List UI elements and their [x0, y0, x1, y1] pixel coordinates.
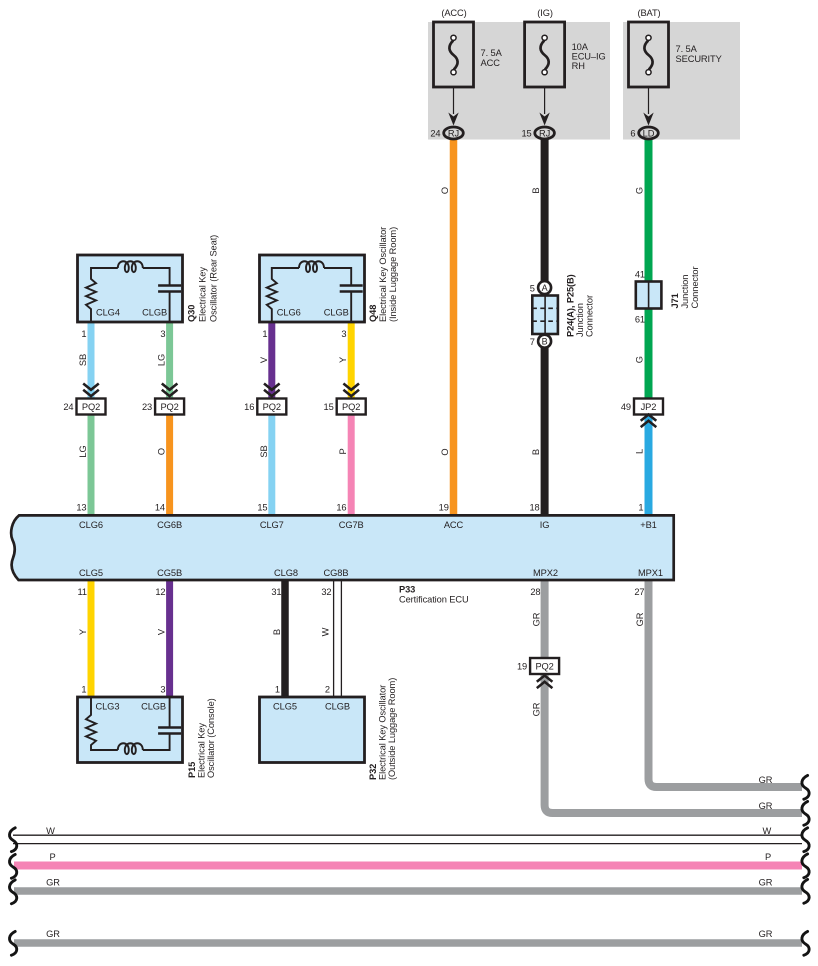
svg-text:CLG8: CLG8	[274, 568, 298, 578]
svg-text:Connector: Connector	[690, 267, 700, 309]
svg-text:SECURITY: SECURITY	[676, 54, 722, 64]
svg-text:J71: J71	[670, 293, 680, 308]
svg-text:B: B	[542, 337, 548, 347]
svg-text:G: G	[635, 187, 645, 194]
svg-text:PQ2: PQ2	[160, 402, 178, 412]
svg-text:Junction: Junction	[575, 303, 585, 337]
svg-text:GR: GR	[759, 801, 773, 811]
svg-text:61: 61	[635, 315, 645, 325]
svg-text:CLG3: CLG3	[96, 702, 120, 712]
svg-text:GR: GR	[635, 612, 645, 626]
svg-text:3: 3	[341, 329, 346, 339]
svg-text:GR: GR	[531, 612, 541, 626]
svg-text:RJ: RJ	[539, 128, 550, 138]
svg-text:LG: LG	[157, 354, 167, 366]
svg-text:(Inside Luggage Room): (Inside Luggage Room)	[388, 227, 398, 322]
svg-text:3: 3	[160, 685, 165, 695]
svg-text:B: B	[272, 629, 282, 635]
svg-text:O: O	[440, 187, 450, 194]
svg-text:16: 16	[336, 503, 346, 513]
svg-text:GR: GR	[759, 878, 773, 888]
svg-text:49: 49	[621, 402, 631, 412]
svg-text:P: P	[49, 852, 55, 862]
svg-text:Y: Y	[78, 629, 88, 635]
svg-text:27: 27	[634, 587, 644, 597]
svg-text:A: A	[542, 283, 548, 293]
svg-text:Junction: Junction	[680, 275, 690, 309]
svg-text:15: 15	[257, 503, 267, 513]
svg-text:CG7B: CG7B	[339, 520, 364, 530]
svg-text:18: 18	[529, 503, 539, 513]
svg-text:PQ2: PQ2	[342, 402, 360, 412]
svg-text:13: 13	[76, 503, 86, 513]
svg-text:GR: GR	[759, 929, 773, 939]
svg-text:GR: GR	[759, 775, 773, 785]
svg-text:LG: LG	[78, 445, 88, 457]
svg-text:14: 14	[155, 503, 165, 513]
svg-text:W: W	[762, 826, 771, 836]
svg-text:P: P	[338, 448, 348, 454]
svg-text:LD: LD	[643, 128, 655, 138]
svg-text:ECU–IG: ECU–IG	[572, 52, 606, 62]
svg-text:GR: GR	[531, 702, 541, 716]
svg-text:O: O	[157, 448, 167, 455]
svg-text:RH: RH	[572, 61, 585, 71]
svg-text:1: 1	[262, 329, 267, 339]
svg-text:Q30: Q30	[187, 305, 197, 322]
svg-text:19: 19	[517, 662, 527, 672]
svg-text:11: 11	[78, 587, 87, 597]
svg-text:W: W	[321, 627, 331, 636]
svg-text:23: 23	[142, 402, 152, 412]
svg-text:7. 5A: 7. 5A	[676, 44, 698, 54]
svg-text:B: B	[531, 187, 541, 193]
svg-text:JP2: JP2	[641, 402, 657, 412]
svg-text:GR: GR	[46, 929, 60, 939]
svg-text:31: 31	[271, 587, 281, 597]
svg-text:Electrical Key Oscillator: Electrical Key Oscillator	[378, 685, 388, 780]
svg-text:PQ2: PQ2	[82, 402, 100, 412]
svg-text:Oscillator (Console): Oscillator (Console)	[206, 698, 216, 778]
svg-text:1: 1	[275, 685, 280, 695]
svg-text:Y: Y	[338, 357, 348, 363]
svg-text:CLG5: CLG5	[273, 702, 297, 712]
svg-text:10A: 10A	[572, 42, 589, 52]
svg-text:3: 3	[160, 329, 165, 339]
svg-text:Electrical Key: Electrical Key	[197, 723, 207, 778]
svg-text:6: 6	[630, 129, 635, 139]
svg-text:CLGB: CLGB	[324, 308, 349, 318]
svg-text:Electrical Key: Electrical Key	[198, 267, 208, 322]
svg-text:(BAT): (BAT)	[637, 8, 660, 18]
svg-text:12: 12	[155, 587, 165, 597]
svg-text:RJ: RJ	[448, 128, 459, 138]
svg-text:CLGB: CLGB	[325, 702, 350, 712]
svg-text:24: 24	[63, 402, 73, 412]
svg-text:24: 24	[430, 129, 440, 139]
svg-text:P33: P33	[399, 584, 415, 594]
svg-text:ACC: ACC	[481, 58, 501, 68]
svg-text:1: 1	[81, 329, 86, 339]
svg-text:P32: P32	[368, 764, 378, 780]
svg-text:19: 19	[439, 503, 449, 513]
svg-text:Q48: Q48	[368, 305, 378, 322]
svg-text:CG5B: CG5B	[157, 568, 182, 578]
svg-text:P: P	[765, 852, 771, 862]
svg-text:MPX2: MPX2	[533, 568, 558, 578]
svg-text:Electrical Key Oscillator: Electrical Key Oscillator	[378, 227, 388, 322]
svg-text:(IG): (IG)	[537, 8, 553, 18]
svg-text:W: W	[46, 826, 55, 836]
svg-text:41: 41	[635, 270, 645, 280]
svg-text:V: V	[259, 356, 269, 363]
svg-text:GR: GR	[46, 878, 60, 888]
svg-text:B: B	[531, 449, 541, 455]
svg-text:CG8B: CG8B	[324, 568, 349, 578]
svg-text:CG6B: CG6B	[157, 520, 182, 530]
svg-text:(ACC): (ACC)	[441, 8, 466, 18]
svg-text:16: 16	[244, 402, 254, 412]
svg-text:IG: IG	[540, 520, 550, 530]
svg-text:CLG6: CLG6	[277, 308, 301, 318]
svg-text:CLG6: CLG6	[79, 520, 103, 530]
svg-text:CLG4: CLG4	[96, 308, 120, 318]
svg-text:1: 1	[638, 503, 643, 513]
svg-text:L: L	[635, 449, 645, 454]
svg-text:MPX1: MPX1	[638, 568, 663, 578]
svg-text:SB: SB	[78, 354, 88, 366]
svg-text:V: V	[157, 628, 167, 635]
svg-text:ACC: ACC	[444, 520, 464, 530]
svg-text:5: 5	[530, 284, 535, 294]
svg-text:PQ2: PQ2	[535, 661, 553, 671]
svg-text:(Outside Luggage Room): (Outside Luggage Room)	[387, 678, 397, 780]
svg-text:PQ2: PQ2	[263, 402, 281, 412]
svg-text:CLG5: CLG5	[79, 568, 103, 578]
svg-text:CLGB: CLGB	[142, 308, 167, 318]
svg-text:2: 2	[325, 685, 330, 695]
svg-text:Certification ECU: Certification ECU	[399, 595, 469, 605]
svg-text:32: 32	[321, 587, 331, 597]
svg-text:Oscillator (Rear Seat): Oscillator (Rear Seat)	[209, 235, 219, 322]
svg-text:CLG7: CLG7	[260, 520, 284, 530]
svg-text:15: 15	[521, 129, 531, 139]
svg-text:7: 7	[530, 337, 535, 347]
svg-text:7. 5A: 7. 5A	[481, 48, 503, 58]
svg-text:SB: SB	[259, 445, 269, 457]
svg-text:P15: P15	[187, 762, 197, 778]
svg-text:P24(A), P25(B): P24(A), P25(B)	[566, 274, 576, 337]
svg-text:28: 28	[530, 587, 540, 597]
svg-text:O: O	[440, 448, 450, 455]
svg-text:CLGB: CLGB	[141, 702, 166, 712]
svg-text:G: G	[635, 356, 645, 363]
svg-text:1: 1	[81, 685, 86, 695]
svg-text:15: 15	[324, 402, 334, 412]
svg-text:+B1: +B1	[640, 520, 657, 530]
svg-text:Connector: Connector	[585, 295, 595, 337]
